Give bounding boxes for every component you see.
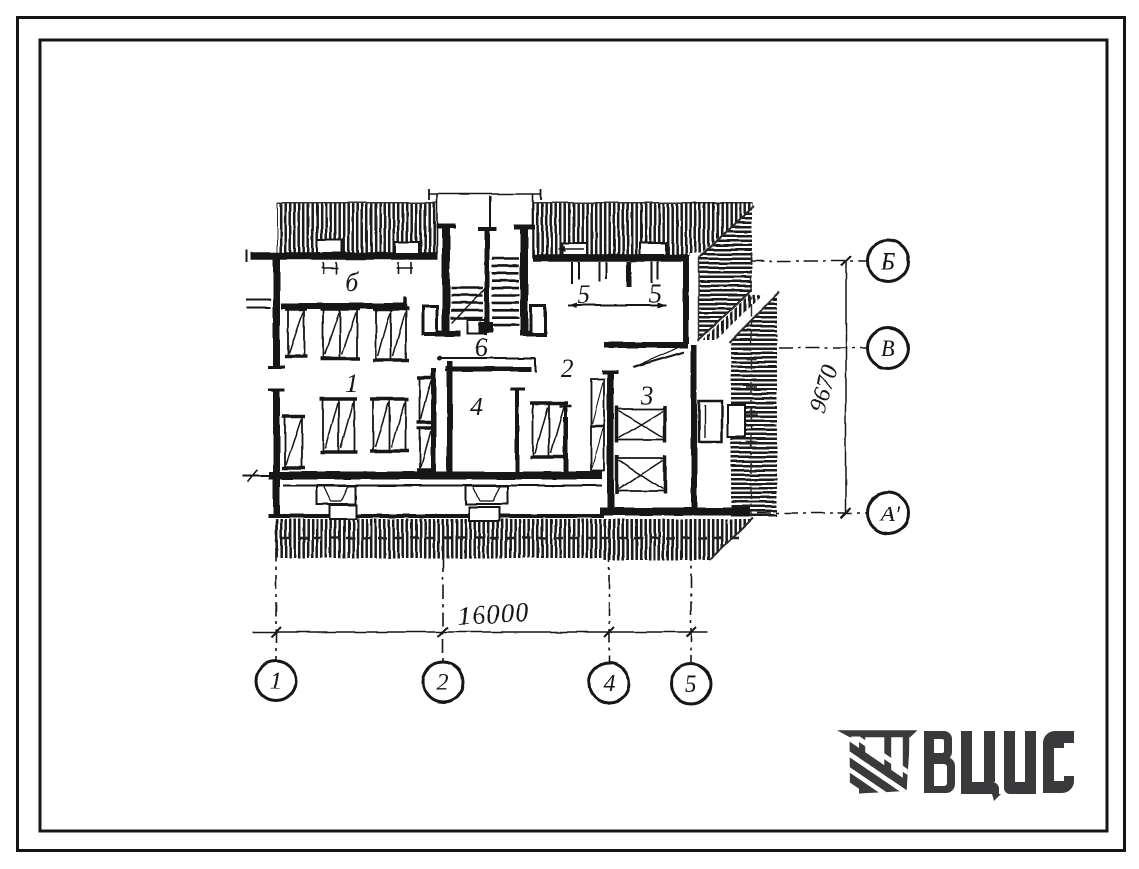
svg-text:5: 5 <box>578 280 591 309</box>
svg-text:5: 5 <box>685 672 697 698</box>
svg-text:6: 6 <box>475 333 488 362</box>
svg-text:2: 2 <box>437 670 449 696</box>
svg-text:4: 4 <box>471 392 484 421</box>
svg-text:4: 4 <box>603 671 615 697</box>
svg-text:1: 1 <box>346 369 359 398</box>
svg-text:1: 1 <box>270 669 282 695</box>
svg-text:16000: 16000 <box>457 597 531 631</box>
svg-text:Б: Б <box>880 249 895 274</box>
svg-text:5: 5 <box>649 279 662 308</box>
svg-text:В: В <box>881 336 895 361</box>
svg-text:3: 3 <box>640 381 654 410</box>
svg-text:б: б <box>345 267 360 297</box>
svg-text:А′: А′ <box>879 501 900 526</box>
svg-text:2: 2 <box>561 354 574 383</box>
